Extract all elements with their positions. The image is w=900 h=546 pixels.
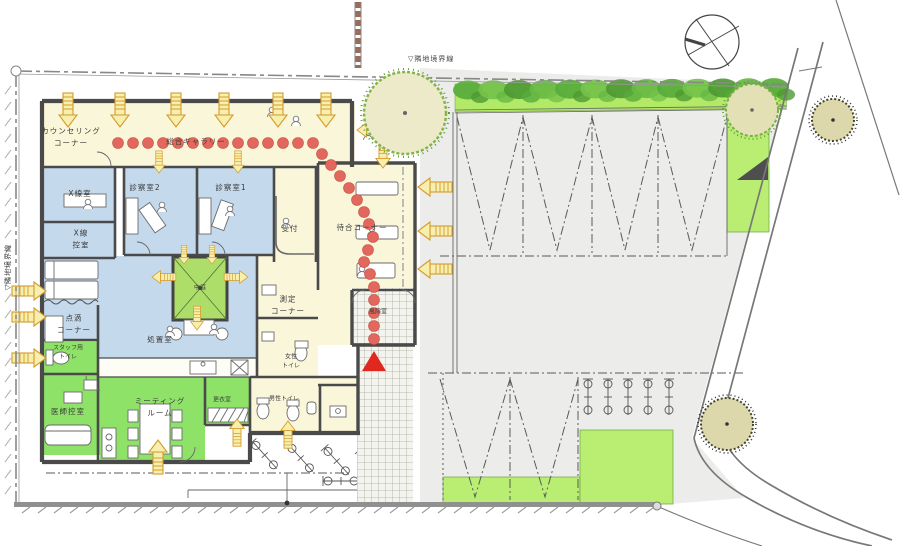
- flow-dot: [233, 138, 244, 149]
- boundary-hatch-tick: [182, 507, 190, 513]
- boundary-hatch-tick: [518, 507, 526, 513]
- flow-dot: [359, 257, 370, 268]
- room-label-measuring: 測定コーナー: [271, 293, 305, 316]
- flow-dot: [326, 160, 337, 171]
- boundary-hatch-tick: [646, 507, 654, 513]
- boundary-hatch-tick: [5, 438, 11, 446]
- boundary-hatch-tick: [246, 507, 254, 513]
- boundary-hatch-tick: [22, 507, 30, 513]
- boundary-hatch-tick: [262, 507, 270, 513]
- boundary-hatch-tick: [5, 86, 11, 94]
- boundary-hatch-tick: [102, 507, 110, 513]
- boundary-hatch-tick: [118, 507, 126, 513]
- boundary-hatch-tick: [550, 507, 558, 513]
- room-label-womens-toilet: 女性トイレ: [282, 353, 300, 372]
- flow-dot: [143, 138, 154, 149]
- boundary-hatch-tick: [630, 507, 638, 513]
- boundary-hatch-tick: [5, 406, 11, 414]
- site-plan-drawing: [0, 0, 900, 546]
- flow-dot: [308, 138, 319, 149]
- north-arrow-icon: [685, 15, 739, 69]
- room-label-courtyard: 中庭: [194, 283, 206, 292]
- flow-dot: [363, 245, 374, 256]
- boundary-hatch-tick: [5, 182, 11, 190]
- boundary-hatch-tick: [486, 507, 494, 513]
- room-label-doctors-lounge: 医師控室: [51, 406, 85, 418]
- boundary-hatch-tick: [534, 507, 542, 513]
- flow-dot: [248, 138, 259, 149]
- room-label-gallery: 総合ギャラリー: [166, 136, 226, 148]
- boundary-hatch-tick: [326, 507, 334, 513]
- boundary-hatch-tick: [214, 507, 222, 513]
- boundary-hatch-tick: [502, 507, 510, 513]
- flow-dot: [359, 207, 370, 218]
- room-label-iv-corner: 点滴コーナー: [57, 312, 91, 335]
- boundary-hatch-tick: [5, 214, 11, 222]
- boundary-hatch-tick: [166, 507, 174, 513]
- room-label-reception: 受付: [282, 223, 299, 235]
- room-label-xray: X線室: [68, 188, 91, 200]
- boundary-hatch-tick: [5, 326, 11, 334]
- boundary-label-left: ▽隣地境界線: [3, 231, 13, 303]
- flow-dot: [335, 171, 346, 182]
- flow-dot: [317, 149, 328, 160]
- room-label-treatment: 処置室: [147, 334, 173, 346]
- tree-icon: [698, 395, 756, 453]
- room-label-changing: 更衣室: [213, 395, 231, 404]
- boundary-pole-marker: [355, 2, 361, 68]
- flow-dot: [369, 282, 380, 293]
- flow-dot: [369, 321, 380, 332]
- boundary-hatch-tick: [422, 507, 430, 513]
- boundary-hatch-tick: [5, 102, 11, 110]
- boundary-hatch-tick: [54, 507, 62, 513]
- boundary-hatch-tick: [5, 118, 11, 126]
- room-label-exam2: 診察室2: [129, 182, 160, 194]
- flow-dot: [113, 138, 124, 149]
- boundary-hatch-tick: [406, 507, 414, 513]
- flow-dot: [344, 183, 355, 194]
- boundary-hatch-tick: [5, 134, 11, 142]
- room-label-xray-anteroom: X線控室: [73, 227, 90, 250]
- boundary-hatch-tick: [310, 507, 318, 513]
- boundary-hatch-tick: [582, 507, 590, 513]
- boundary-hatch-tick: [5, 310, 11, 318]
- boundary-hatch-tick: [38, 507, 46, 513]
- flow-dot: [369, 334, 380, 345]
- boundary-hatch-tick: [454, 507, 462, 513]
- boundary-hatch-tick: [614, 507, 622, 513]
- room-label-vestibule: 風除室: [369, 307, 387, 316]
- site-plan-canvas: カウンセリングコーナー 総合ギャラリー X線室 X線控室 診察室2 診察室1 受…: [0, 0, 900, 546]
- flow-dot: [369, 295, 380, 306]
- boundary-hatch-tick: [374, 507, 382, 513]
- flow-dot: [365, 269, 376, 280]
- flow-dot: [352, 195, 363, 206]
- boundary-hatch-tick: [278, 507, 286, 513]
- room-label-counseling: カウンセリングコーナー: [41, 125, 101, 148]
- room-label-staff-toilet: スタッフ用トイレ: [53, 344, 83, 363]
- boundary-hatch-tick: [5, 198, 11, 206]
- flow-dot: [128, 138, 139, 149]
- boundary-hatch-tick: [5, 342, 11, 350]
- room-label-exam1: 診察室1: [215, 182, 246, 194]
- boundary-hatch-tick: [342, 507, 350, 513]
- boundary-hatch-tick: [5, 150, 11, 158]
- flow-dot: [278, 138, 289, 149]
- boundary-hatch-tick: [438, 507, 446, 513]
- boundary-hatch-tick: [598, 507, 606, 513]
- boundary-hatch-tick: [470, 507, 478, 513]
- room-label-waiting: 待合コーナー: [337, 222, 388, 234]
- room-label-mens-toilet: 男性トイレ: [269, 394, 299, 403]
- boundary-hatch-tick: [294, 507, 302, 513]
- boundary-hatch-tick: [5, 454, 11, 462]
- boundary-label-top: ▽隣地境界線: [408, 54, 454, 64]
- boundary-hatch-tick: [566, 507, 574, 513]
- boundary-hatch-tick: [134, 507, 142, 513]
- boundary-hatch-tick: [150, 507, 158, 513]
- boundary-hatch-tick: [5, 422, 11, 430]
- boundary-hatch-tick: [5, 390, 11, 398]
- boundary-hatch-tick: [358, 507, 366, 513]
- flow-dot: [293, 138, 304, 149]
- boundary-hatch-tick: [5, 374, 11, 382]
- boundary-hatch-tick: [5, 470, 11, 478]
- room-label-meeting: ミーティングルーム: [135, 395, 186, 418]
- boundary-hatch-tick: [5, 166, 11, 174]
- boundary-hatch-tick: [5, 358, 11, 366]
- boundary-hatch-tick: [230, 507, 238, 513]
- tree-icon: [809, 96, 857, 144]
- boundary-hatch-tick: [70, 507, 78, 513]
- boundary-hatch-tick: [86, 507, 94, 513]
- boundary-hatch-tick: [390, 507, 398, 513]
- boundary-hatch-tick: [5, 486, 11, 494]
- flow-dot: [263, 138, 274, 149]
- boundary-hatch-tick: [198, 507, 206, 513]
